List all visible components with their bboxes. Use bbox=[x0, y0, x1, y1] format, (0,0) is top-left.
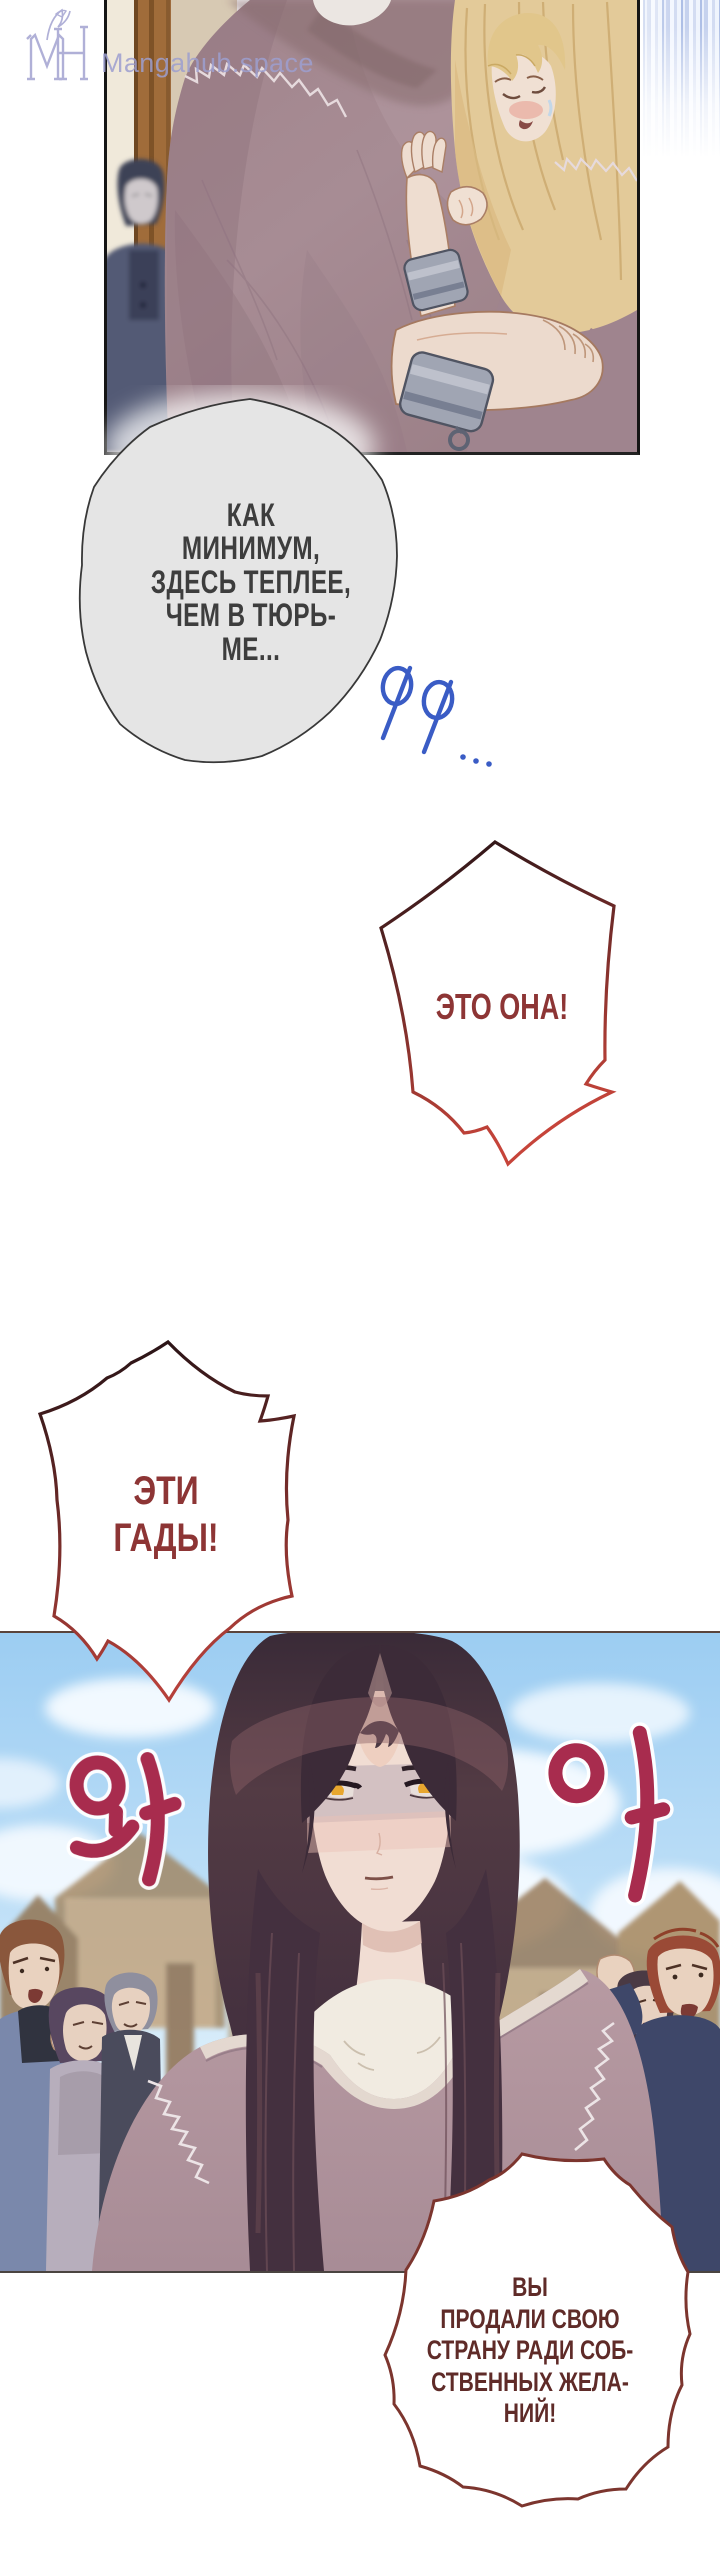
svg-text:Mangahub.space: Mangahub.space bbox=[101, 48, 314, 78]
